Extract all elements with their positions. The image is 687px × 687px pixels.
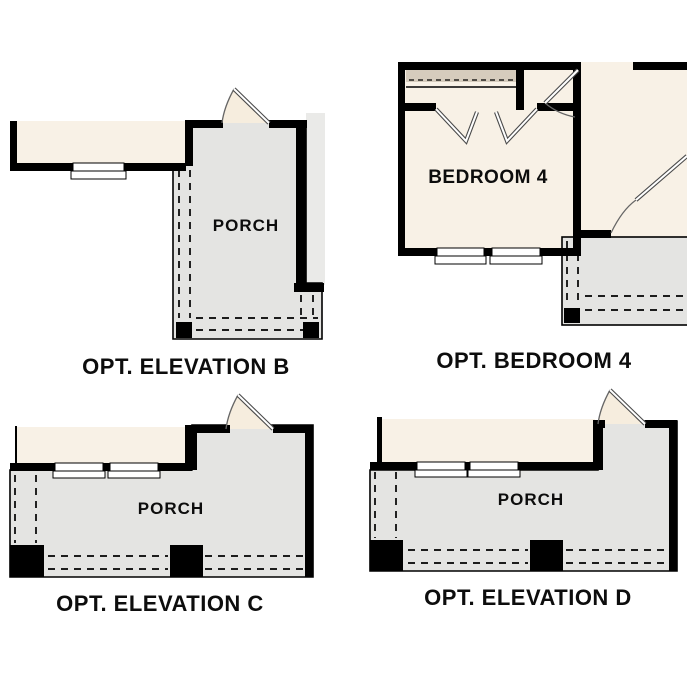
plan-title-elevation-d: OPT. ELEVATION D xyxy=(378,585,678,611)
room-area xyxy=(381,419,595,462)
room-label-bedroom-4: BEDROOM 4 xyxy=(408,167,568,189)
porch-post xyxy=(10,545,44,577)
porch-post xyxy=(564,308,580,323)
wall xyxy=(398,103,436,111)
wall xyxy=(294,283,324,292)
porch-post xyxy=(370,540,403,571)
wall xyxy=(103,463,110,471)
room-label-porch-c: PORCH xyxy=(111,499,231,519)
window xyxy=(53,471,105,478)
window xyxy=(110,463,158,471)
window xyxy=(73,163,124,171)
plan-title-bedroom-4: OPT. BEDROOM 4 xyxy=(384,348,684,374)
wall xyxy=(516,62,524,110)
porch-post xyxy=(170,545,203,577)
wall xyxy=(465,462,470,470)
room-label-porch-d: PORCH xyxy=(471,490,591,510)
wall xyxy=(305,425,313,577)
wall xyxy=(398,248,437,256)
wall xyxy=(185,120,193,166)
floorplan-sheet: PORCH BEDROOM 4 PORCH PORCH OPT. ELEVATI… xyxy=(0,0,687,687)
wall xyxy=(540,248,581,256)
wall xyxy=(669,420,677,571)
porch-post xyxy=(303,322,319,338)
window xyxy=(435,256,486,264)
wall xyxy=(573,230,611,238)
porch-post xyxy=(530,540,563,571)
plan-title-elevation-c: OPT. ELEVATION C xyxy=(10,591,310,617)
wall xyxy=(124,163,186,171)
porch-post xyxy=(176,322,192,338)
wall xyxy=(377,417,382,463)
room-area xyxy=(17,427,185,463)
plan-elevation-d xyxy=(370,390,677,571)
window xyxy=(71,171,126,179)
window xyxy=(470,462,518,470)
wall xyxy=(10,163,73,171)
wall xyxy=(484,248,492,256)
plan-title-elevation-b: OPT. ELEVATION B xyxy=(36,354,336,380)
window xyxy=(492,248,540,256)
window xyxy=(108,471,160,478)
window xyxy=(490,256,542,264)
room-area xyxy=(16,121,186,164)
plan-elevation-c xyxy=(10,395,313,577)
wall xyxy=(398,62,580,70)
hall-area xyxy=(580,62,687,237)
exterior-wall-strip xyxy=(306,113,325,285)
plan-elevation-b xyxy=(10,89,325,339)
wall xyxy=(296,120,306,292)
window xyxy=(437,248,484,256)
room-area xyxy=(404,69,574,249)
wall xyxy=(10,463,55,471)
window xyxy=(468,470,520,477)
wall xyxy=(573,62,581,256)
room-label-porch-b: PORCH xyxy=(186,216,306,236)
wall xyxy=(398,62,405,256)
wall xyxy=(370,462,417,470)
window xyxy=(55,463,103,471)
window xyxy=(417,462,465,470)
wall xyxy=(633,62,687,70)
floorplan-drawing xyxy=(0,0,687,687)
plan-bedroom-4 xyxy=(398,62,687,325)
window xyxy=(415,470,467,477)
wall xyxy=(518,462,603,470)
wall xyxy=(192,425,230,433)
